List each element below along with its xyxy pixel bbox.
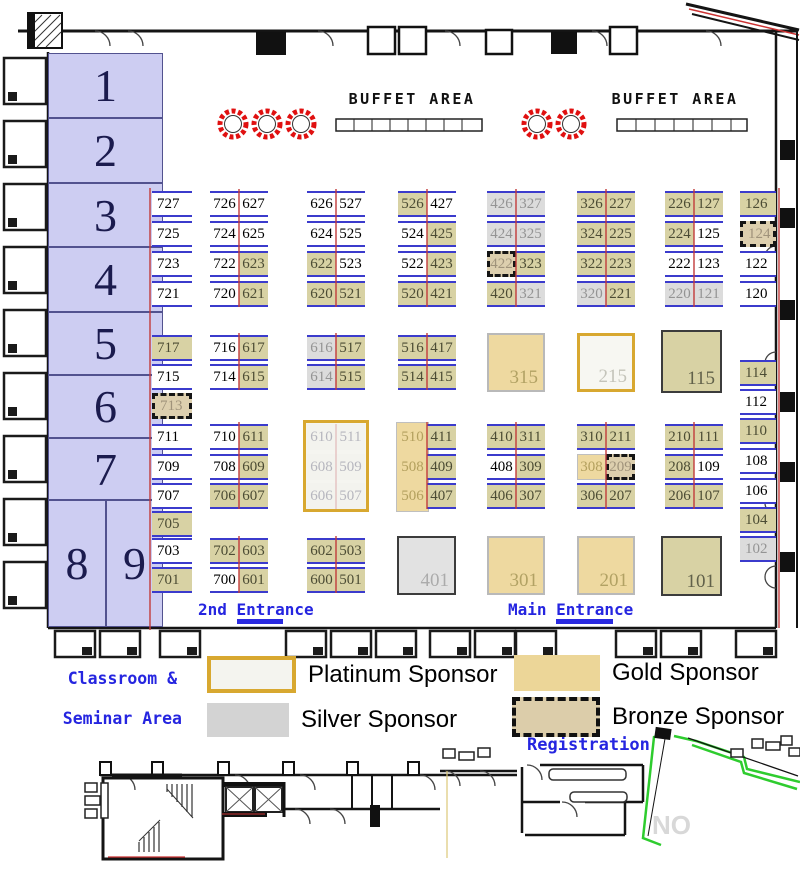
booth-324[interactable]: 324 — [577, 221, 606, 247]
booth-523[interactable]: 523 — [336, 251, 365, 277]
platinum-swatch — [207, 656, 296, 693]
booth-606[interactable]: 606 — [307, 483, 336, 509]
booth-517[interactable]: 517 — [336, 335, 365, 361]
booth-610[interactable]: 610 — [307, 424, 336, 450]
booth-423[interactable]: 423 — [427, 251, 456, 277]
booth-122[interactable]: 122 — [740, 251, 776, 277]
booth-725[interactable]: 725 — [152, 221, 192, 247]
booth-600[interactable]: 600 — [307, 567, 336, 593]
main-entrance-label: Main Entrance — [508, 600, 633, 619]
booth-307[interactable]: 307 — [516, 483, 545, 509]
booth-503[interactable]: 503 — [336, 538, 365, 564]
booth-123[interactable]: 123 — [694, 251, 723, 277]
silver-label: Silver Sponsor — [301, 706, 457, 734]
booth-625[interactable]: 625 — [239, 221, 268, 247]
booth-108[interactable]: 108 — [740, 448, 776, 474]
booth-714[interactable]: 714 — [210, 364, 239, 390]
booth-509[interactable]: 509 — [336, 454, 365, 480]
booth-617[interactable]: 617 — [239, 335, 268, 361]
booth-526[interactable]: 526 — [398, 191, 427, 217]
legend-bronze: Bronze Sponsor — [512, 697, 784, 737]
booth-620[interactable]: 620 — [307, 281, 336, 307]
booth-420[interactable]: 420 — [487, 281, 516, 307]
booth-225[interactable]: 225 — [606, 221, 635, 247]
booth-702[interactable]: 702 — [210, 538, 239, 564]
booth-525[interactable]: 525 — [336, 221, 365, 247]
booth-707[interactable]: 707 — [152, 483, 192, 509]
booth-109[interactable]: 109 — [694, 454, 723, 480]
legend-silver: Silver Sponsor — [207, 703, 457, 737]
booth-114[interactable]: 114 — [740, 360, 776, 386]
booth-624[interactable]: 624 — [307, 221, 336, 247]
bronze-swatch — [512, 697, 600, 737]
booth-709[interactable]: 709 — [152, 454, 192, 480]
booth-722[interactable]: 722 — [210, 251, 239, 277]
booth-516[interactable]: 516 — [398, 335, 427, 361]
booth-425[interactable]: 425 — [427, 221, 456, 247]
booth-407[interactable]: 407 — [427, 483, 456, 509]
booth-510[interactable]: 510 — [398, 424, 427, 450]
booth-700[interactable]: 700 — [210, 567, 239, 593]
booth-706[interactable]: 706 — [210, 483, 239, 509]
bronze-label: Bronze Sponsor — [612, 703, 784, 731]
booth-724[interactable]: 724 — [210, 221, 239, 247]
booth-222[interactable]: 222 — [665, 251, 694, 277]
booth-406[interactable]: 406 — [487, 483, 516, 509]
booth-401[interactable]: 401 — [397, 536, 456, 595]
booth-515[interactable]: 515 — [336, 364, 365, 390]
booth-325[interactable]: 325 — [516, 221, 545, 247]
booth-615[interactable]: 615 — [239, 364, 268, 390]
gold-swatch — [514, 655, 600, 691]
booth-220[interactable]: 220 — [665, 281, 694, 307]
booth-227[interactable]: 227 — [606, 191, 635, 217]
registration-label: Registration — [527, 735, 650, 755]
booth-626[interactable]: 626 — [307, 191, 336, 217]
booth-623[interactable]: 623 — [239, 251, 268, 277]
booth-106[interactable]: 106 — [740, 478, 776, 504]
main-entrance-marker — [556, 619, 613, 624]
booth-110[interactable]: 110 — [740, 418, 776, 444]
buffet-area-label-2: BUFFET AREA — [600, 90, 750, 108]
booth-607[interactable]: 607 — [239, 483, 268, 509]
booth-614[interactable]: 614 — [307, 364, 336, 390]
booth-602[interactable]: 602 — [307, 538, 336, 564]
booth-710[interactable]: 710 — [210, 424, 239, 450]
booth-426[interactable]: 426 — [487, 191, 516, 217]
booth-408[interactable]: 408 — [487, 454, 516, 480]
booth-320[interactable]: 320 — [577, 281, 606, 307]
booth-611[interactable]: 611 — [239, 424, 268, 450]
booth-306[interactable]: 306 — [577, 483, 606, 509]
booth-126[interactable]: 126 — [740, 191, 776, 217]
booth-310[interactable]: 310 — [577, 424, 606, 450]
booth-112[interactable]: 112 — [740, 389, 776, 415]
booth-705[interactable]: 705 — [152, 511, 192, 537]
booth-323[interactable]: 323 — [516, 251, 545, 277]
booth-322[interactable]: 322 — [577, 251, 606, 277]
booth-616[interactable]: 616 — [307, 335, 336, 361]
platinum-label: Platinum Sponsor — [308, 661, 497, 689]
booth-520[interactable]: 520 — [398, 281, 427, 307]
booth-721[interactable]: 721 — [152, 281, 192, 307]
booth-514[interactable]: 514 — [398, 364, 427, 390]
booth-309[interactable]: 309 — [516, 454, 545, 480]
booth-501[interactable]: 501 — [336, 567, 365, 593]
booth-311[interactable]: 311 — [516, 424, 545, 450]
booth-210[interactable]: 210 — [665, 424, 694, 450]
booth-726[interactable]: 726 — [210, 191, 239, 217]
booth-308[interactable]: 308 — [577, 454, 606, 480]
booth-327[interactable]: 327 — [516, 191, 545, 217]
booth-224[interactable]: 224 — [665, 221, 694, 247]
booth-621[interactable]: 621 — [239, 281, 268, 307]
booth-221[interactable]: 221 — [606, 281, 635, 307]
booth-223[interactable]: 223 — [606, 251, 635, 277]
booth-422[interactable]: 422 — [487, 251, 516, 277]
booth-424[interactable]: 424 — [487, 221, 516, 247]
booth-124[interactable]: 124 — [740, 221, 776, 247]
booth-115[interactable]: 115 — [661, 330, 722, 393]
booth-111[interactable]: 111 — [694, 424, 723, 450]
booth-522[interactable]: 522 — [398, 251, 427, 277]
booth-211[interactable]: 211 — [606, 424, 635, 450]
booth-713[interactable]: 713 — [152, 393, 192, 419]
legend-gold: Gold Sponsor — [514, 655, 759, 691]
second-entrance-marker — [237, 619, 283, 624]
booth-417[interactable]: 417 — [427, 335, 456, 361]
booth-121[interactable]: 121 — [694, 281, 723, 307]
booth-701[interactable]: 701 — [152, 567, 192, 593]
booth-711[interactable]: 711 — [152, 424, 192, 450]
booth-411[interactable]: 411 — [427, 424, 456, 450]
booth-727[interactable]: 727 — [152, 191, 192, 217]
booth-208[interactable]: 208 — [665, 454, 694, 480]
booth-609[interactable]: 609 — [239, 454, 268, 480]
booth-301[interactable]: 301 — [487, 536, 545, 595]
booth-421[interactable]: 421 — [427, 281, 456, 307]
booth-215[interactable]: 215 — [577, 333, 635, 392]
booth-201[interactable]: 201 — [577, 536, 635, 595]
booth-125[interactable]: 125 — [694, 221, 723, 247]
silver-swatch — [207, 703, 289, 737]
booth-524[interactable]: 524 — [398, 221, 427, 247]
booth-101[interactable]: 101 — [661, 536, 722, 596]
booth-716[interactable]: 716 — [210, 335, 239, 361]
booth-715[interactable]: 715 — [152, 364, 192, 390]
booth-708[interactable]: 708 — [210, 454, 239, 480]
booth-409[interactable]: 409 — [427, 454, 456, 480]
gold-label: Gold Sponsor — [612, 659, 759, 687]
booth-107[interactable]: 107 — [694, 483, 723, 509]
booth-601[interactable]: 601 — [239, 567, 268, 593]
booth-104[interactable]: 104 — [740, 507, 776, 533]
booth-717[interactable]: 717 — [152, 335, 192, 361]
legend-platinum: Platinum Sponsor — [207, 656, 497, 693]
booth-127[interactable]: 127 — [694, 191, 723, 217]
booth-415[interactable]: 415 — [427, 364, 456, 390]
booth-102[interactable]: 102 — [740, 536, 776, 562]
classroom-area-label: Classroom & Seminar Area — [20, 649, 185, 749]
booth-507[interactable]: 507 — [336, 483, 365, 509]
booth-603[interactable]: 603 — [239, 538, 268, 564]
booth-206[interactable]: 206 — [665, 483, 694, 509]
booth-511[interactable]: 511 — [336, 424, 365, 450]
booth-506[interactable]: 506 — [398, 483, 427, 509]
buffet-area-label-1: BUFFET AREA — [337, 90, 487, 108]
booth-326[interactable]: 326 — [577, 191, 606, 217]
booth-720[interactable]: 720 — [210, 281, 239, 307]
booth-527[interactable]: 527 — [336, 191, 365, 217]
booth-723[interactable]: 723 — [152, 251, 192, 277]
booth-321[interactable]: 321 — [516, 281, 545, 307]
booth-209[interactable]: 209 — [606, 454, 635, 480]
booth-622[interactable]: 622 — [307, 251, 336, 277]
booth-627[interactable]: 627 — [239, 191, 268, 217]
booth-120[interactable]: 120 — [740, 281, 776, 307]
second-entrance-label: 2nd Entrance — [198, 600, 314, 619]
booth-608[interactable]: 608 — [307, 454, 336, 480]
booth-508[interactable]: 508 — [398, 454, 427, 480]
booth-315[interactable]: 315 — [487, 333, 545, 392]
booth-207[interactable]: 207 — [606, 483, 635, 509]
floor-plan: 123456789 727725723721726627724625722623… — [0, 0, 800, 875]
booth-226[interactable]: 226 — [665, 191, 694, 217]
booth-703[interactable]: 703 — [152, 538, 192, 564]
booth-521[interactable]: 521 — [336, 281, 365, 307]
booth-427[interactable]: 427 — [427, 191, 456, 217]
booth-410[interactable]: 410 — [487, 424, 516, 450]
